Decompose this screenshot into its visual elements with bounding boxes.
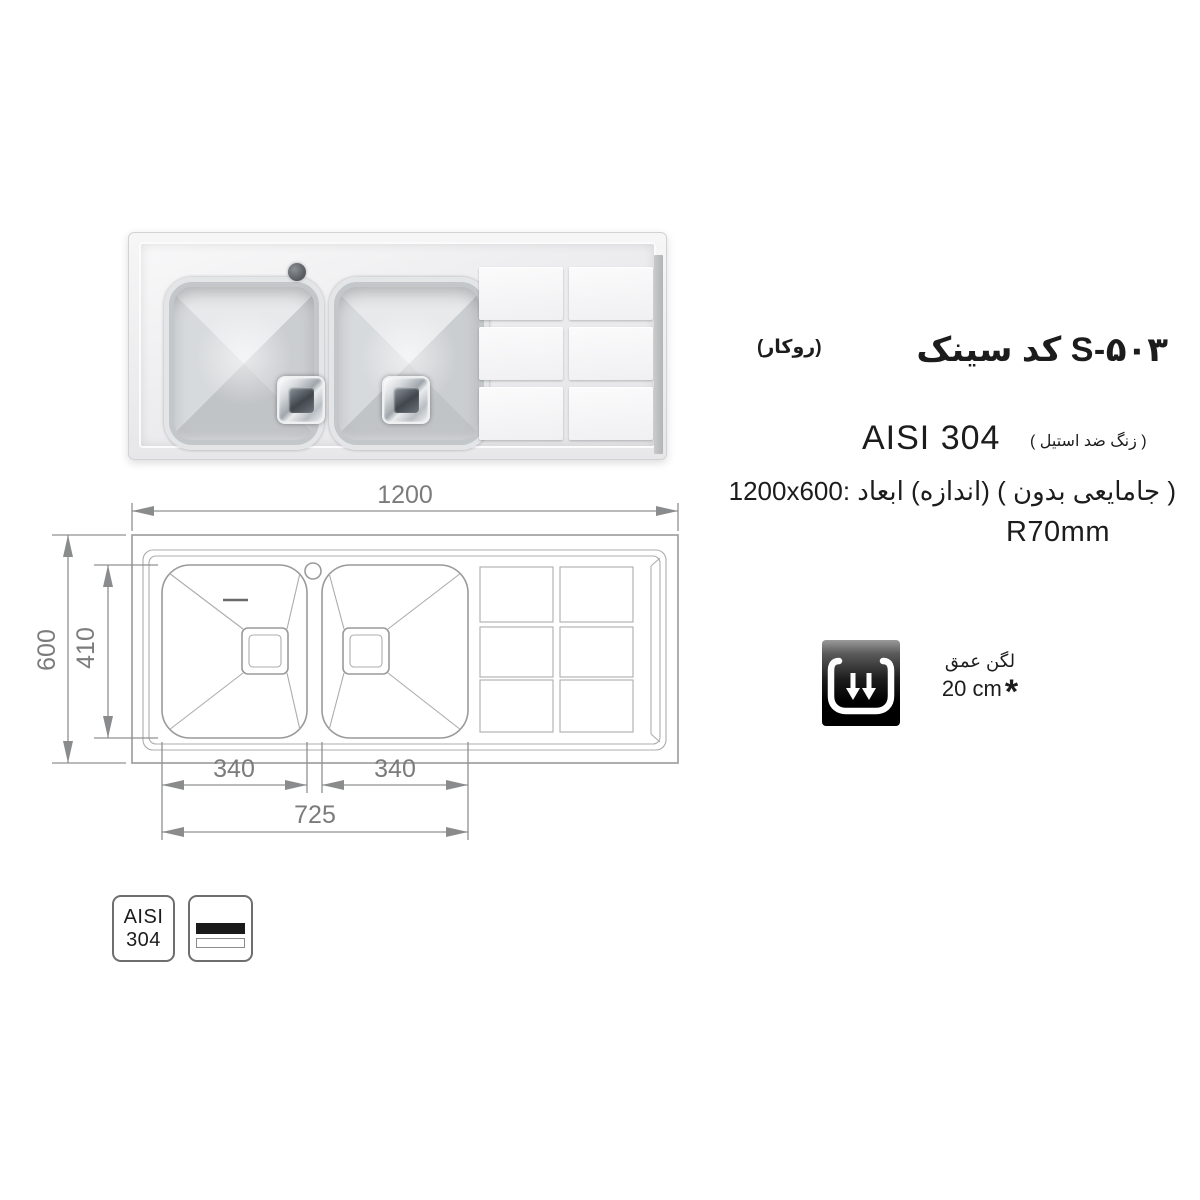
bowl-depth-note: عمق لگن 20 cm* xyxy=(918,648,1042,704)
dim-410-label: 410 xyxy=(72,627,100,669)
drainboard-cell xyxy=(479,327,563,380)
drawing-bowl-right xyxy=(322,565,468,738)
mount-type-label: (روکار) xyxy=(757,336,822,359)
sink-bowl-right xyxy=(329,277,489,450)
dimensions-note: 1200x600: ابعاد (اندازه) ( بدون جامایعی … xyxy=(729,476,1176,507)
drain-left xyxy=(277,376,325,424)
sink-product-photo xyxy=(128,232,667,460)
drainboard xyxy=(479,267,653,440)
dim-600-label: 600 xyxy=(33,629,61,671)
dim-340-right-label: 340 xyxy=(374,755,416,783)
drainboard-edge-strip xyxy=(654,255,663,454)
bowl-depth-icon xyxy=(822,640,900,726)
drawing-drainboard xyxy=(480,567,633,732)
product-title: سینک کد S-۵۰۳ xyxy=(916,330,1168,370)
faucet-hole xyxy=(288,263,306,281)
bowl-depth-label: عمق لگن xyxy=(918,648,1042,674)
drainboard-cell xyxy=(569,327,653,380)
corner-radius-label: R70mm xyxy=(1006,516,1110,549)
drain-right xyxy=(382,376,430,424)
sink-tray-surface xyxy=(139,242,656,448)
sink-top-view-drawing: 1200 600 410 340 340 xyxy=(30,470,710,870)
sheet-solid-bar xyxy=(196,923,245,934)
spec-sheet-page: { "product": { "title": "سینک کد S-۵۰۳",… xyxy=(0,0,1200,1200)
drainboard-cell xyxy=(569,387,653,440)
dim-overall-width: 1200 xyxy=(132,481,678,531)
steel-sheet-icon xyxy=(188,895,253,962)
steel-grade-note: ( استیل ضد زنگ ) xyxy=(1030,431,1147,451)
dim-bowls-overall: 725 xyxy=(162,801,468,837)
drawing-rim-inner xyxy=(149,556,660,744)
aisi-line1: AISI xyxy=(124,906,164,929)
drawing-bowl-left xyxy=(162,565,307,738)
steel-grade-label: AISI 304 xyxy=(862,419,1000,458)
bowl-profile-down-arrows-icon xyxy=(822,640,900,726)
aisi-304-badge: AISI 304 xyxy=(112,895,175,962)
sink-bowl-left xyxy=(164,277,324,450)
sheet-outline-bar xyxy=(196,938,245,948)
drainboard-cell xyxy=(569,267,653,320)
drawing-outer-edge xyxy=(132,535,678,763)
drawing-rim xyxy=(143,550,666,750)
aisi-line2: 304 xyxy=(126,929,161,952)
drainboard-cell xyxy=(479,267,563,320)
drawing-faucet-hole xyxy=(305,563,321,579)
dim-bowl-length: 410 xyxy=(72,565,158,738)
dim-340-left-label: 340 xyxy=(213,755,255,783)
dim-bowl2-width: 340 xyxy=(322,742,468,840)
bowl-depth-value: 20 cm* xyxy=(918,674,1042,704)
dim-1200-label: 1200 xyxy=(377,481,433,509)
dim-bowl1-width: 340 xyxy=(162,742,307,840)
dim-725-label: 725 xyxy=(294,801,336,829)
drainboard-cell xyxy=(479,387,563,440)
